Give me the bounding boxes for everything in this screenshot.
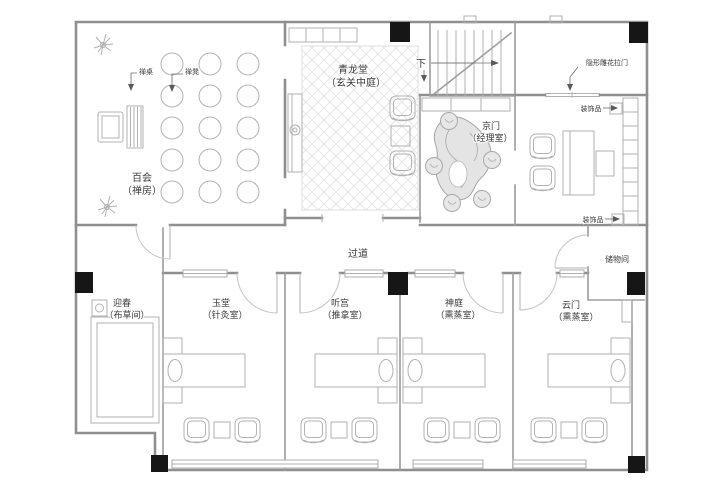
column-bottom-left <box>151 455 168 472</box>
side-chair <box>596 151 614 176</box>
tea-stool <box>474 191 491 208</box>
plant-decor <box>94 34 113 55</box>
room-label-yutang: 玉堂 <box>212 297 230 308</box>
column-corridor-mid <box>388 272 408 295</box>
room-type-yunmen: （熏蒸室） <box>553 311 598 322</box>
room-label-tinggong: 听宫 <box>331 297 349 308</box>
room-type-yingchun: （布草间） <box>104 309 149 320</box>
tinggong-furniture <box>301 338 397 443</box>
doors <box>136 225 588 313</box>
entry-cabinet-row <box>289 28 357 42</box>
decor-label-bottom: 装饰品 <box>583 215 604 224</box>
room-type-yutang: （针灸室） <box>202 309 247 320</box>
tea-stool <box>426 158 443 175</box>
column-bottom-right <box>628 456 645 473</box>
shenting-furniture <box>403 338 500 443</box>
atrium-furniture <box>288 28 418 210</box>
room-label-qinglongtang: 青龙堂 <box>338 63 368 76</box>
massage-bed <box>315 354 397 387</box>
desk-area <box>530 131 614 195</box>
office-cabinet-row <box>422 98 510 111</box>
decor-label-top: 装饰品 <box>581 104 602 113</box>
massage-bed <box>548 354 630 387</box>
massage-bed <box>403 354 485 387</box>
room-type-tinggong: （推拿室） <box>322 309 367 320</box>
host-chair <box>98 112 123 142</box>
staircase <box>421 30 511 96</box>
manager-office-furniture <box>422 98 638 225</box>
plant-decor <box>98 196 117 217</box>
room-label-yingchun: 迎春 <box>113 297 131 308</box>
meditation-room-furniture <box>94 34 259 217</box>
room-type-qinglongtang: （玄关中庭） <box>326 76 386 89</box>
altar-console <box>288 94 302 172</box>
pillow <box>408 360 422 382</box>
room-type-jingmen: （经理室） <box>467 132 512 143</box>
desk <box>563 131 594 195</box>
tea-stool <box>484 152 501 169</box>
meditation-table <box>127 106 143 148</box>
room-label-jingmen: 京门 <box>482 120 500 131</box>
room-type-shenting: （熏蒸室） <box>435 309 480 320</box>
pillow <box>379 360 393 382</box>
desk-chair <box>530 134 555 159</box>
desk-chair <box>530 166 555 191</box>
column-top-center <box>390 22 410 42</box>
tea-stool <box>444 195 461 212</box>
column-right-mid <box>627 272 645 295</box>
stair-down-label: 下 <box>416 59 426 70</box>
room-label-chuwujian: 储物间 <box>605 254 629 264</box>
room-label-shenting: 神庭 <box>445 297 463 308</box>
room-label-baihui: 百会 <box>132 171 152 184</box>
room-label-yunmen: 云门 <box>562 299 580 310</box>
hidden-door-label: 隐形雕花拉门 <box>586 58 628 67</box>
yutang-furniture <box>163 338 260 443</box>
pillow <box>611 360 625 382</box>
floor-plan: 百会 （禅房） 青龙堂 （玄关中庭） 京门 （经理室） 过道 迎春 （布草间） … <box>0 0 722 500</box>
chan-table-label: 禅桌 <box>139 67 153 76</box>
massage-bed <box>163 354 245 387</box>
meditation-stools <box>161 53 259 203</box>
pillow <box>168 360 182 382</box>
column-left-mid <box>75 272 93 293</box>
room-label-guodao: 过道 <box>348 247 368 260</box>
floor-plan-svg: 百会 （禅房） 青龙堂 （玄关中庭） 京门 （经理室） 过道 迎春 （布草间） … <box>0 0 722 500</box>
column-top-right <box>629 22 648 43</box>
tea-stool <box>441 113 458 130</box>
chan-stool-label: 禅凳 <box>185 67 199 76</box>
room-type-baihui: （禅房） <box>122 184 162 197</box>
